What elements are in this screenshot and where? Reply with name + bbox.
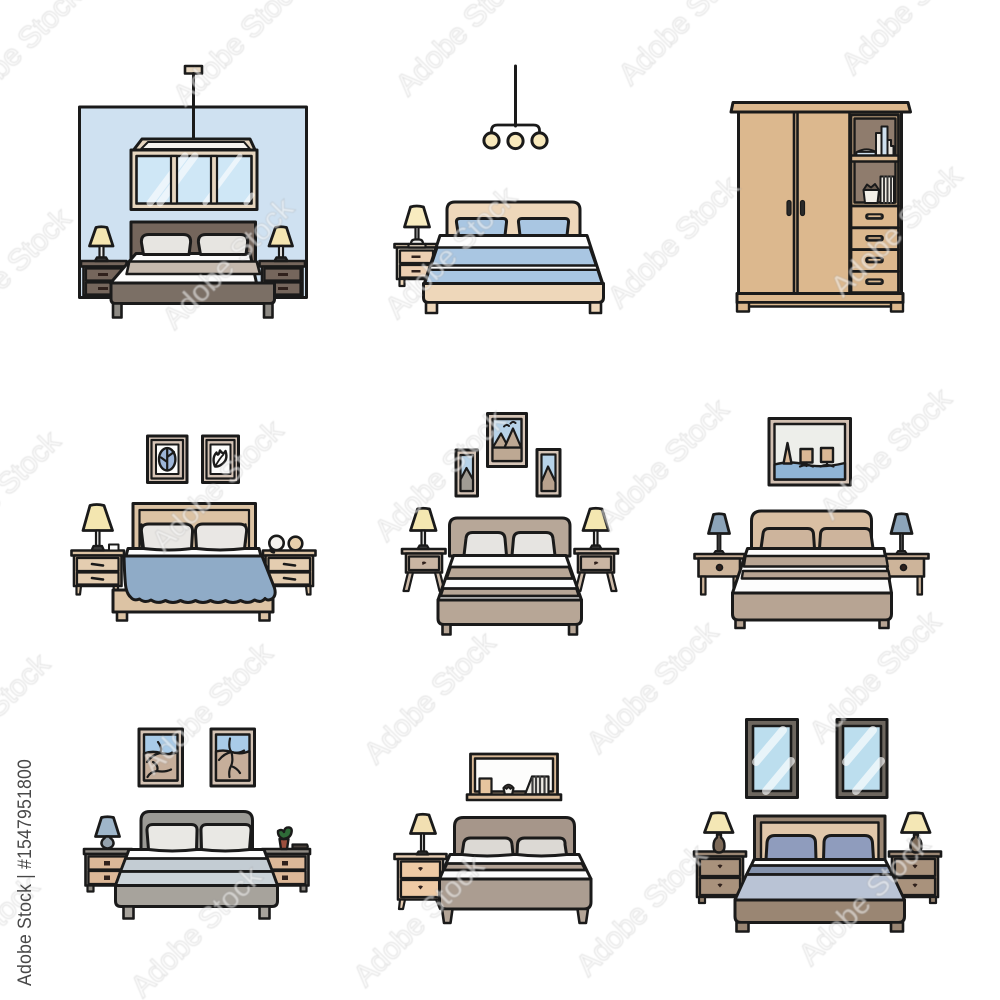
- svg-text:Adobe Stock | #1547951800: Adobe Stock | #1547951800: [15, 759, 36, 986]
